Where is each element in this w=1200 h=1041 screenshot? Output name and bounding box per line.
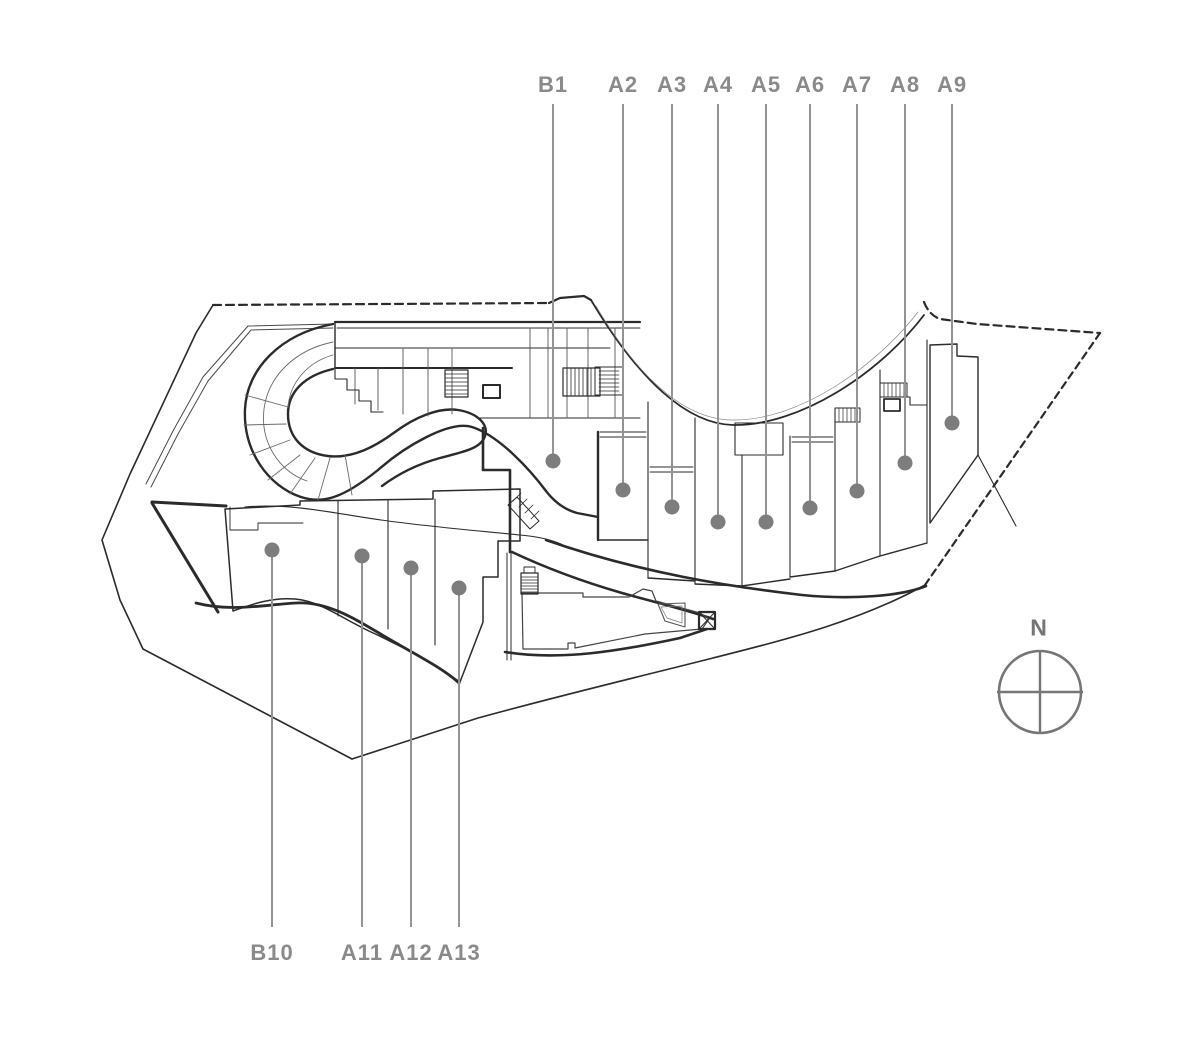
unit-label-a6[interactable]: A6 (795, 72, 825, 98)
stair-icon (563, 368, 600, 396)
unit-dot-a11[interactable] (355, 549, 370, 564)
leader-line-a6 (809, 104, 811, 508)
unit-label-b10[interactable]: B10 (250, 940, 293, 966)
unit-dot-a4[interactable] (711, 515, 726, 530)
unit-dot-a12[interactable] (404, 561, 419, 576)
unit-dot-a2[interactable] (616, 483, 631, 498)
unit-a9-outline (930, 344, 978, 523)
pavilion-outline (522, 589, 709, 649)
leader-line-a2 (622, 104, 624, 490)
unit-label-a2[interactable]: A2 (608, 72, 638, 98)
leader-line-a13 (458, 588, 460, 927)
stair-icon (521, 573, 538, 594)
unit-dot-a3[interactable] (665, 500, 680, 515)
unit-dot-a13[interactable] (452, 581, 467, 596)
boundary-top-notch (549, 296, 591, 303)
leader-line-a8 (904, 104, 906, 463)
unit-label-b1[interactable]: B1 (538, 72, 568, 98)
unit-dot-b10[interactable] (265, 543, 280, 558)
boundary-top-dashed (213, 303, 549, 305)
unit-label-a11[interactable]: A11 (341, 940, 383, 966)
unit-dot-a5[interactable] (759, 515, 774, 530)
unit-dot-a7[interactable] (850, 484, 865, 499)
leader-line-b10 (271, 550, 273, 927)
unit-label-a12[interactable]: A12 (389, 940, 432, 966)
unit-label-a9[interactable]: A9 (937, 72, 967, 98)
unit-dot-a6[interactable] (803, 501, 818, 516)
unit-label-a3[interactable]: A3 (657, 72, 687, 98)
unit-label-a5[interactable]: A5 (751, 72, 781, 98)
leader-line-a3 (671, 104, 673, 507)
site-plan-drawing (0, 0, 1200, 1041)
leader-line-a5 (765, 104, 767, 522)
compass-north-label: N (1030, 615, 1048, 642)
unit-label-a4[interactable]: A4 (703, 72, 733, 98)
unit-label-a13[interactable]: A13 (437, 940, 480, 966)
unit-dot-a9[interactable] (945, 416, 960, 431)
leader-line-a9 (951, 104, 953, 423)
leader-line-a11 (361, 556, 363, 927)
compass-rose (997, 651, 1083, 733)
unit-dot-b1[interactable] (546, 454, 561, 469)
unit-label-a7[interactable]: A7 (842, 72, 872, 98)
leader-line-a4 (717, 104, 719, 522)
site-plan-page: N B1A2A3A4A5A6A7A8A9B10A11A12A13 (0, 0, 1200, 1041)
leader-line-a12 (410, 568, 412, 927)
unit-dot-a8[interactable] (898, 456, 913, 471)
unit-label-a8[interactable]: A8 (890, 72, 920, 98)
leader-line-a7 (856, 104, 858, 491)
boundary-bottom (352, 585, 925, 759)
leader-line-b1 (552, 104, 554, 461)
block-b10-outline (225, 489, 520, 682)
road-outer-edge (245, 324, 598, 517)
facade-arc (591, 300, 924, 425)
